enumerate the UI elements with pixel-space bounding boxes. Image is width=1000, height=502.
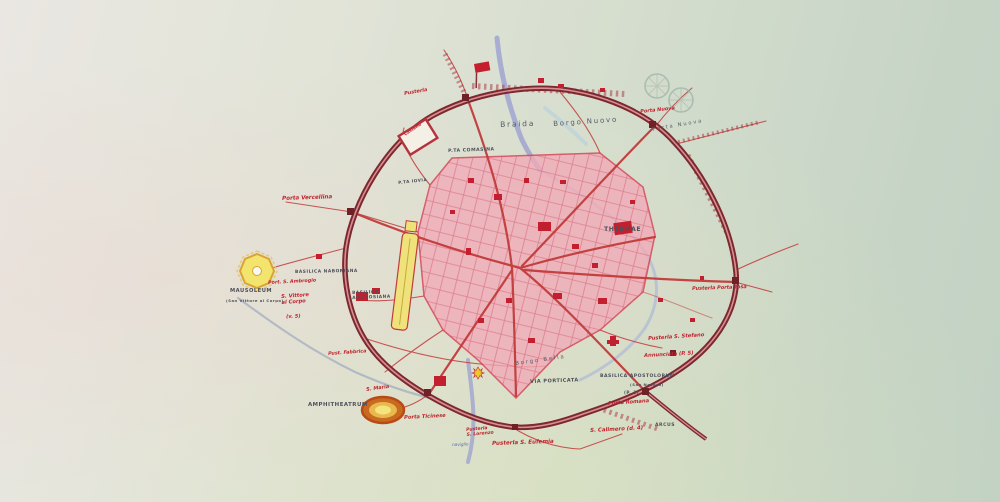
label-amphitheatrum: AMPHITHEATRUM bbox=[308, 402, 368, 408]
label-borgo-porta-nuova: Porta Nuova bbox=[652, 119, 704, 134]
label-s-calimero: S. Calimero (d. 4) bbox=[590, 425, 643, 434]
label-pusterla-s-lorenzo: Pusterla S. Lorenzo bbox=[466, 426, 494, 439]
label-basilica-naboriana: BASILICA NABORIANA bbox=[295, 270, 358, 276]
label-basilica-apostolorum: BASILICA APOSTOLORUM bbox=[600, 374, 675, 379]
label-porta-vercellina: Porta Vercellina bbox=[282, 194, 332, 202]
label-porta-nuova: Porta Nuova bbox=[640, 106, 675, 115]
label-port-s-ambrogio: Port. S. Ambrogio bbox=[268, 278, 316, 286]
label-naviglio: naviglio bbox=[452, 442, 469, 447]
label-basilica-ambrosiana: BASILICA AMBROSIANA bbox=[352, 291, 391, 302]
label-pusterla-s-eufemia: Pusterla S. Eufemia bbox=[492, 439, 554, 447]
label-annunciata: Annunciata (P. 5) bbox=[644, 351, 694, 359]
label-castello: Castello bbox=[404, 123, 423, 138]
label-s-vittore-ref: (v. 5) bbox=[286, 314, 301, 320]
label-pusterla-fabbrica: Pust. Fabbrica bbox=[328, 349, 367, 357]
label-borgo-bella: Borgo Bella bbox=[515, 354, 566, 367]
label-san-nazaro-note: (San Nazaro) bbox=[630, 383, 664, 387]
label-pusterla-north-west: Pusterla bbox=[404, 88, 428, 98]
label-thermae: THERMAE bbox=[604, 227, 641, 234]
label-porta-iovia: P.TA IOVIA bbox=[398, 178, 428, 186]
label-mausoleum: MAUSOLEUM bbox=[230, 289, 272, 295]
label-porta-comasina: P.TA COMASINA bbox=[448, 147, 495, 154]
map-scene: PusterlaCastelloP.TA COMASINABraidaBorgo… bbox=[0, 0, 1000, 502]
label-arcus: ARCUS bbox=[655, 423, 675, 428]
label-porta-ticinese: Porta Ticinese bbox=[404, 414, 446, 422]
label-apostolorum-ref: (P. 3) bbox=[624, 391, 639, 396]
label-borgo-nuovo: Borgo Nuovo bbox=[553, 116, 618, 128]
label-pusterla-s-stefano: Pusterla S. Stefano bbox=[648, 333, 705, 343]
map-labels-layer: PusterlaCastelloP.TA COMASINABraidaBorgo… bbox=[0, 0, 1000, 502]
label-s-maria: S. Maria bbox=[366, 385, 390, 394]
label-s-vittore-al-corpo: S. Vittore al Corpo bbox=[281, 293, 310, 307]
label-porta-tosa: Pusterla Porta Tosa bbox=[692, 285, 747, 293]
label-braida: Braida bbox=[500, 120, 535, 130]
label-porta-romana: Porta Romana bbox=[608, 399, 649, 408]
label-mausoleum-note: (San Vittore al Corpo) bbox=[226, 299, 284, 303]
label-via-porticata: VIA PORTICATA bbox=[530, 378, 579, 385]
